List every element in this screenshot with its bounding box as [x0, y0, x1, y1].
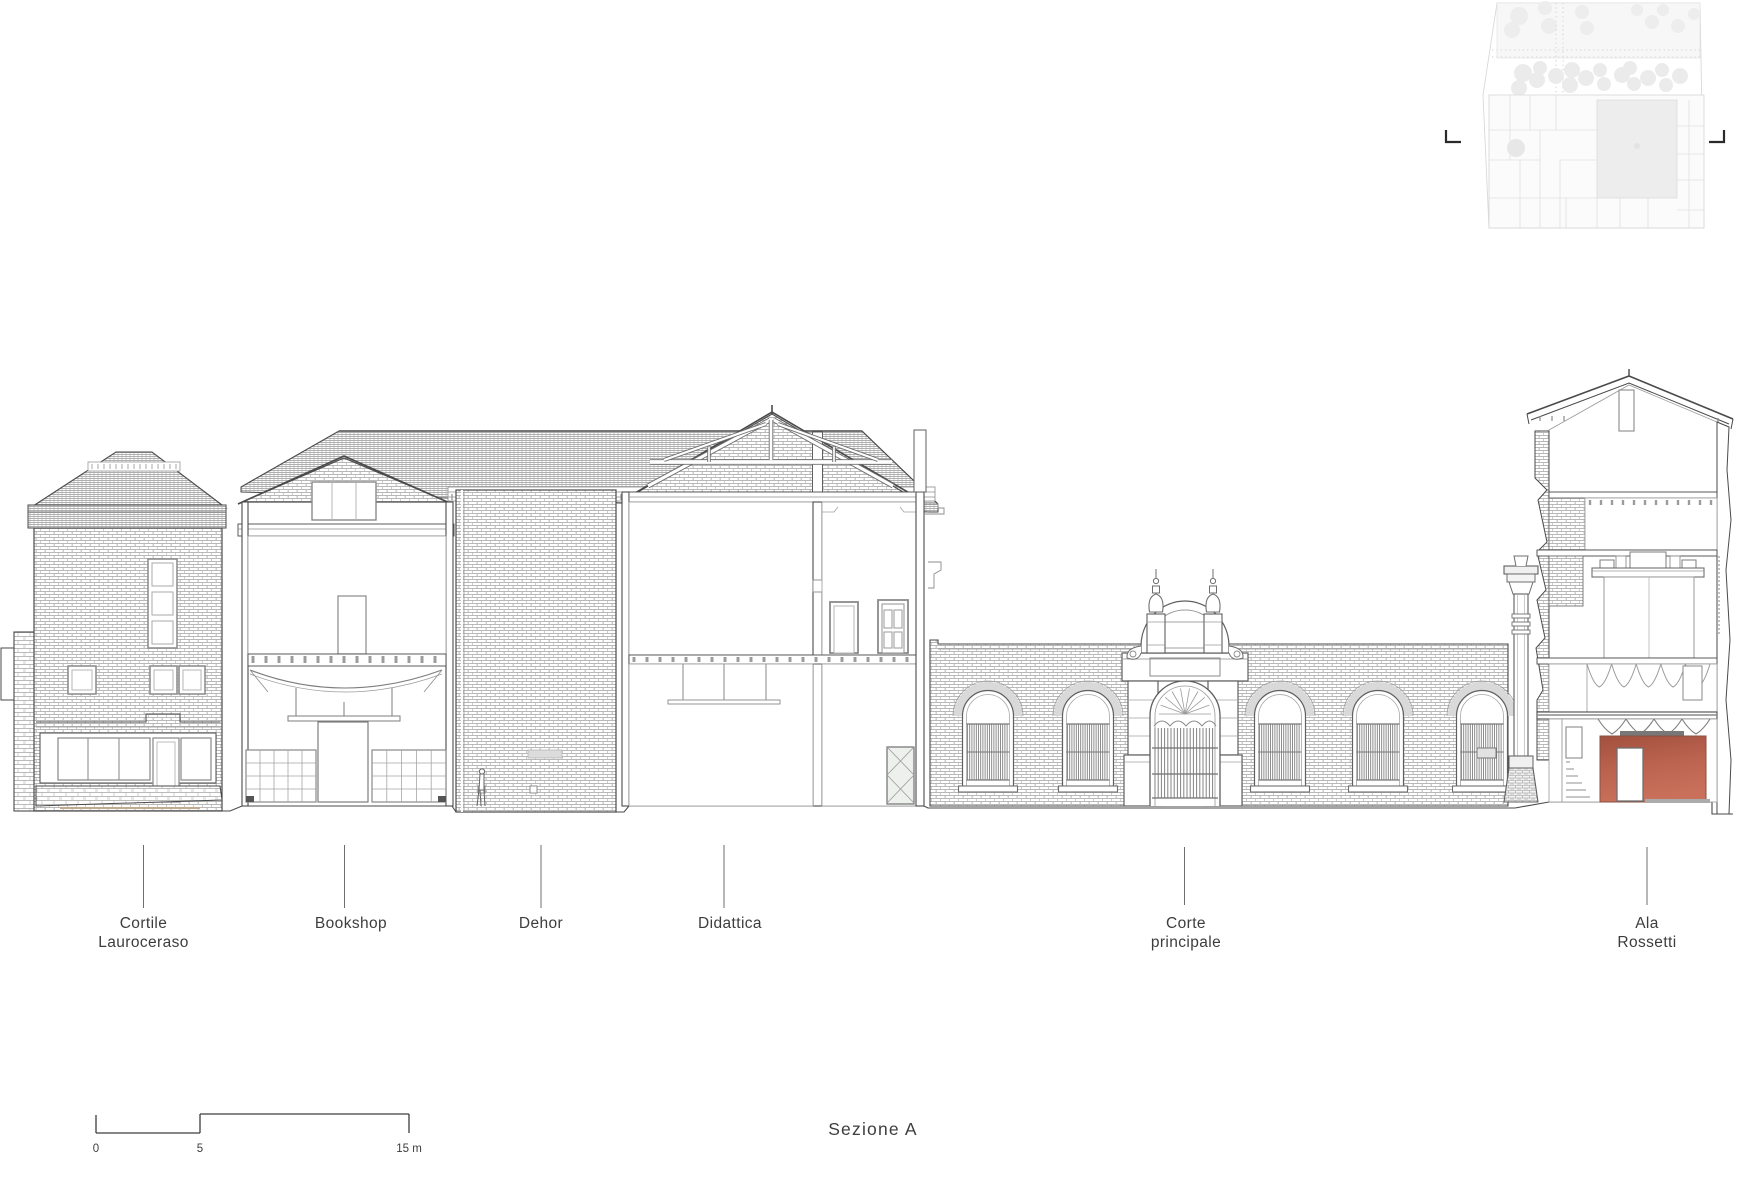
svg-text:principale: principale: [1151, 934, 1221, 951]
svg-text:Bookshop: Bookshop: [315, 915, 387, 932]
svg-text:Rossetti: Rossetti: [1617, 934, 1676, 951]
svg-text:Dehor: Dehor: [519, 915, 563, 932]
svg-text:5: 5: [197, 1143, 203, 1155]
svg-text:Lauroceraso: Lauroceraso: [98, 934, 189, 951]
svg-text:Cortile: Cortile: [120, 915, 168, 932]
svg-text:0: 0: [93, 1143, 99, 1155]
svg-text:Sezione A: Sezione A: [828, 1119, 918, 1139]
svg-text:Didattica: Didattica: [698, 915, 762, 932]
svg-text:Corte: Corte: [1166, 915, 1206, 932]
svg-text:Ala: Ala: [1635, 915, 1659, 932]
svg-text:15 m: 15 m: [396, 1143, 422, 1155]
